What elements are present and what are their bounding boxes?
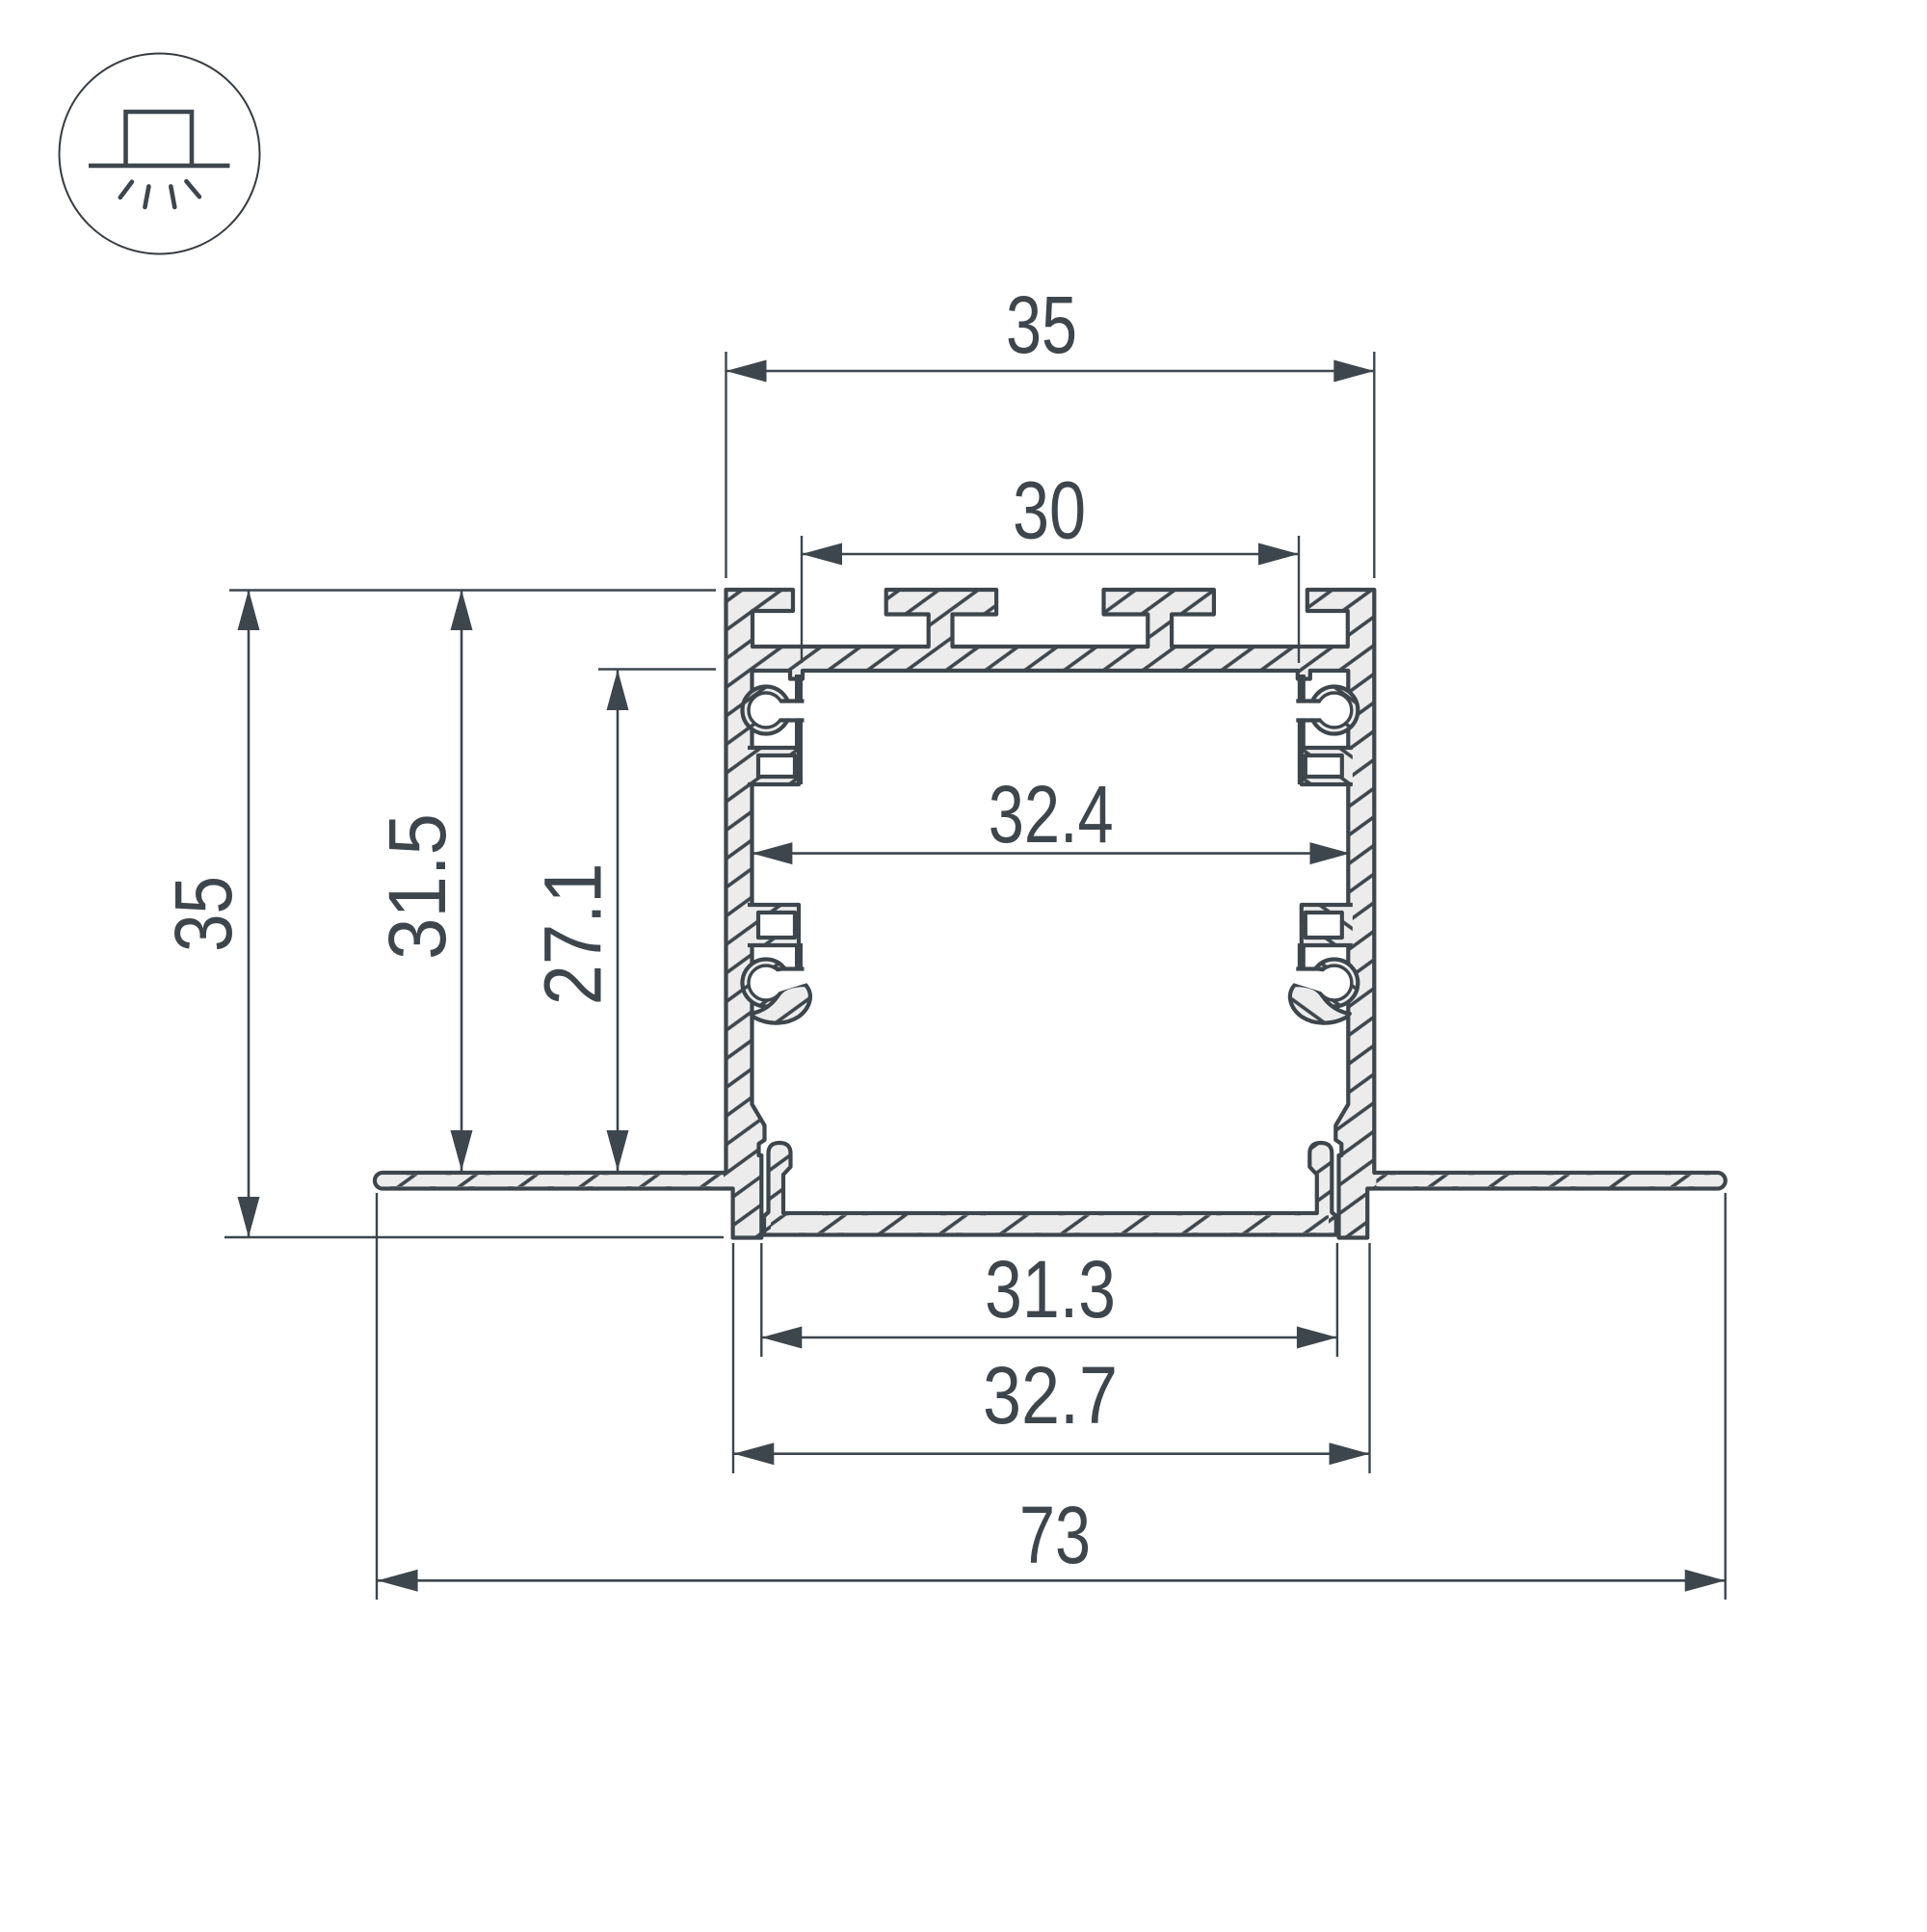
svg-text:32.7: 32.7 (983, 1350, 1118, 1441)
svg-text:35: 35 (158, 876, 249, 952)
svg-text:27.1: 27.1 (527, 862, 618, 1005)
svg-text:35: 35 (1006, 279, 1077, 370)
svg-text:31.3: 31.3 (985, 1244, 1116, 1335)
svg-text:31.5: 31.5 (372, 813, 462, 960)
svg-text:32.4: 32.4 (989, 769, 1114, 860)
svg-text:73: 73 (1019, 1490, 1091, 1580)
svg-text:30: 30 (1013, 465, 1086, 556)
